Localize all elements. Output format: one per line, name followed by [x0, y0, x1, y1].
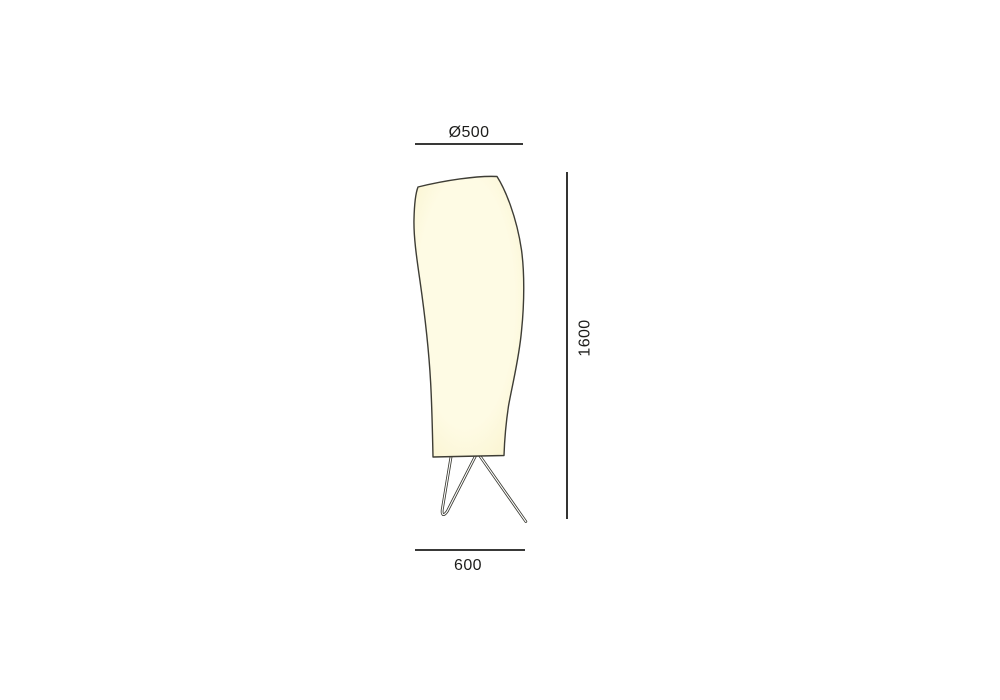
- lamp-shade: [414, 176, 524, 457]
- base-width-dimension-label: 600: [454, 557, 482, 574]
- height-dimension: 1600: [567, 172, 594, 519]
- rear-leg-highlight: [479, 454, 526, 522]
- drawing-canvas: Ø500 1600 600: [0, 0, 1000, 700]
- base-width-dimension: 600: [415, 550, 525, 574]
- lamp-legs: [442, 454, 526, 522]
- lamp-dimension-drawing: Ø500 1600 600: [0, 0, 1000, 700]
- diameter-dimension: Ø500: [415, 124, 523, 144]
- diameter-dimension-label: Ø500: [449, 124, 490, 141]
- height-dimension-label: 1600: [577, 319, 594, 356]
